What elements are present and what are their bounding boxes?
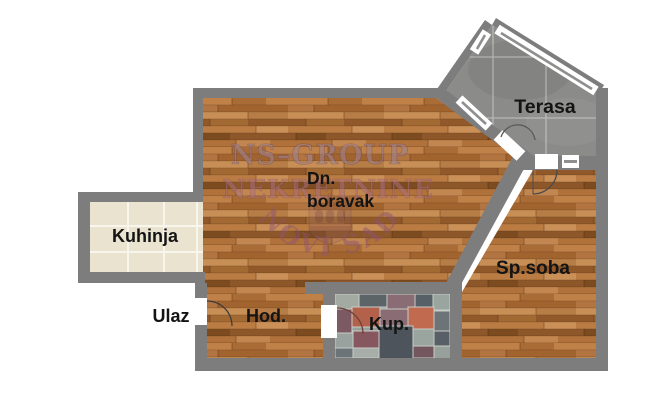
wall-hallway-left [195, 283, 207, 371]
room-label-terasa: Terasa [514, 96, 576, 118]
room-label-living-line1: Dn. [307, 168, 335, 188]
wall-kitchen-top [78, 192, 203, 202]
wall-living-top [193, 88, 444, 98]
wall-bathroom-top [305, 282, 462, 294]
floorplan-svg: NS–GROUP NEKRETNINE NOVI SAD [0, 0, 657, 420]
wall-bathroom-right [450, 294, 462, 358]
bedroom-small-window [562, 155, 579, 168]
room-label-kup: Kup. [369, 314, 409, 334]
room-label-living-line2: boravak [307, 191, 374, 211]
room-label-hod: Hod. [246, 306, 286, 326]
room-label-ulaz: Ulaz [152, 306, 189, 326]
floorplan-page: NS–GROUP NEKRETNINE NOVI SAD [0, 0, 657, 420]
wall-kitchen-bottom [78, 272, 205, 283]
watermark-line1: NS–GROUP [231, 140, 410, 171]
wall-right [596, 88, 608, 371]
wall-kitchen-left [78, 192, 90, 283]
wall-bottom [195, 358, 608, 371]
room-label-spsoba: Sp.soba [496, 258, 570, 279]
room-label-kuhinja: Kuhinja [112, 226, 179, 246]
wall-living-left [193, 88, 203, 202]
